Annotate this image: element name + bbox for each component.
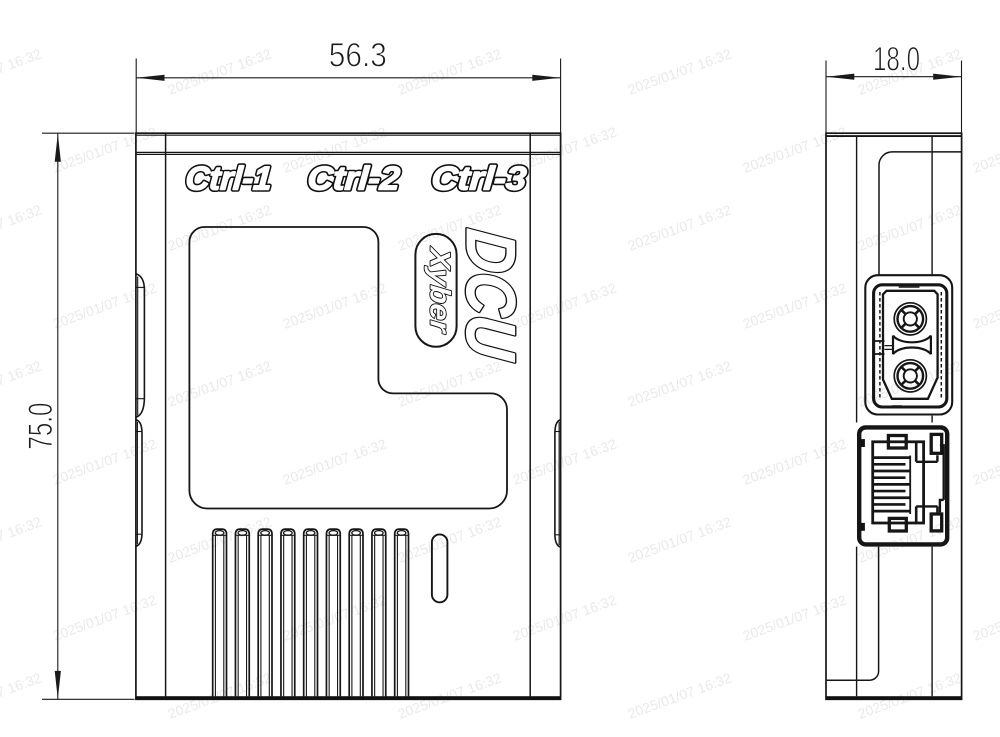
svg-text:18.0: 18.0 — [873, 41, 920, 79]
svg-text:75.0: 75.0 — [22, 403, 60, 450]
svg-text:DCU: DCU — [451, 226, 528, 364]
svg-text:Ctrl-2: Ctrl-2 — [306, 161, 401, 198]
svg-text:Ctrl-3: Ctrl-3 — [430, 161, 527, 198]
svg-text:Ctrl-1: Ctrl-1 — [184, 161, 273, 198]
svg-text:56.3: 56.3 — [329, 37, 387, 75]
svg-text:Xyber: Xyber — [424, 245, 456, 336]
